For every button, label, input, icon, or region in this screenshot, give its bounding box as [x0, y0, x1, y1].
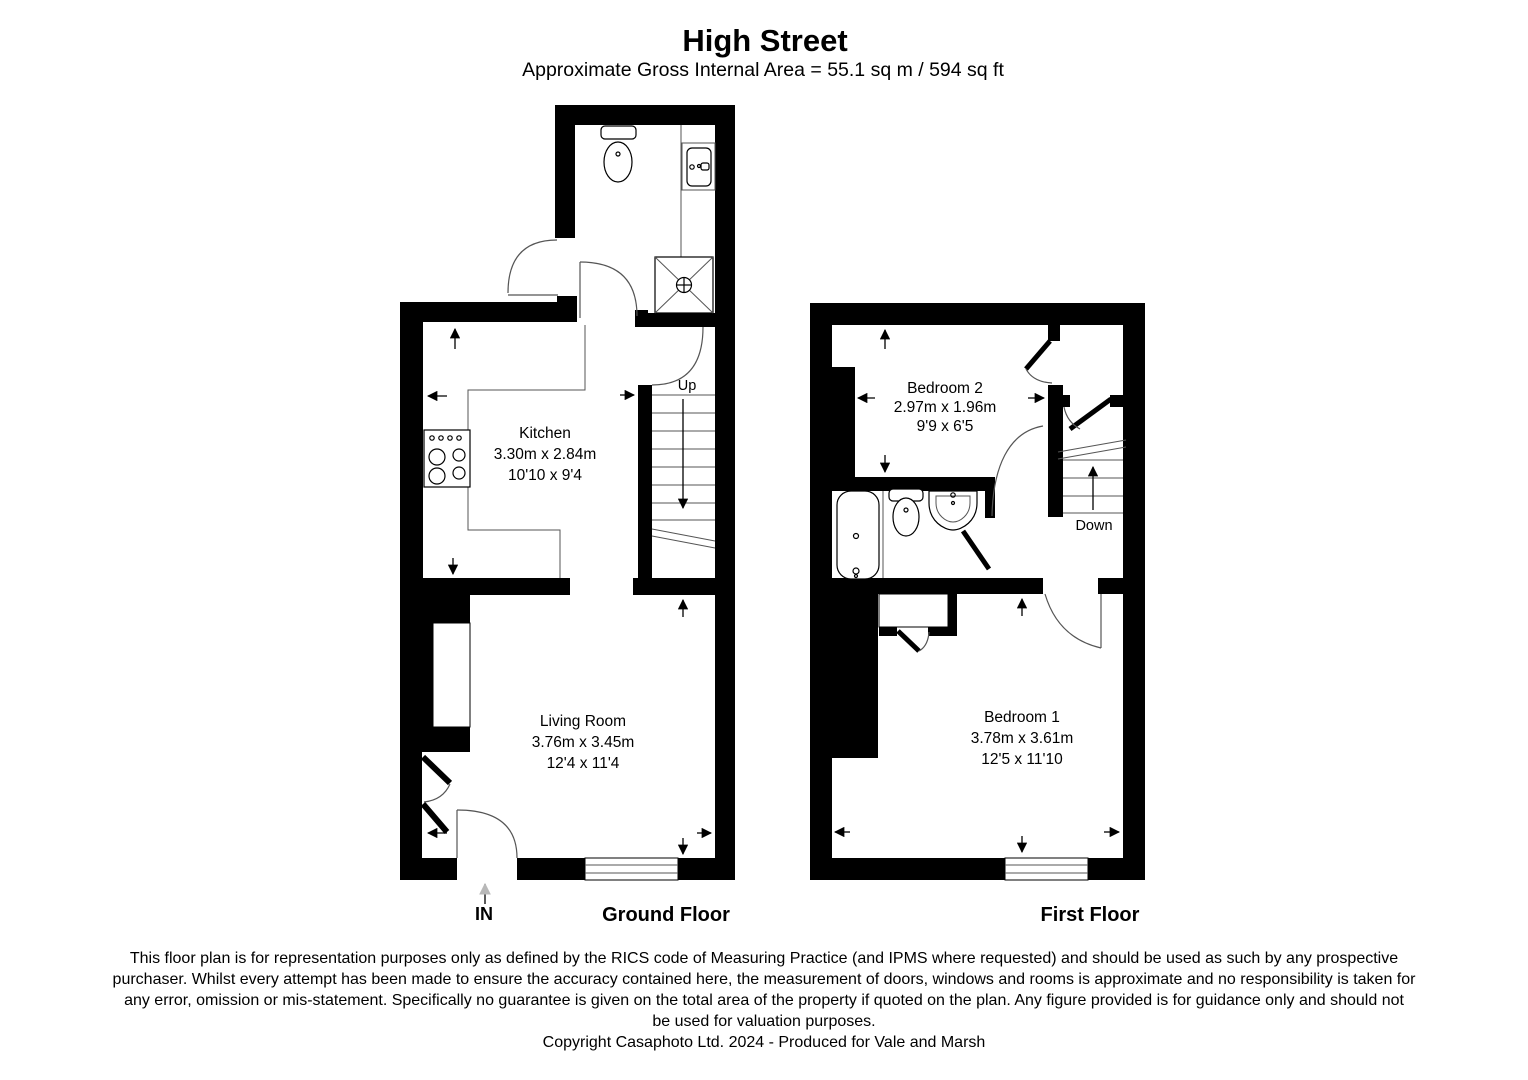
bath-icon — [837, 491, 883, 579]
bay-wall — [423, 757, 450, 783]
disclaimer-line-1: This floor plan is for representation pu… — [130, 950, 1398, 967]
sink-icon — [681, 125, 715, 257]
living-room-label: Living Room 3.76m x 3.45m 12'4 x 11'4 — [532, 713, 635, 772]
entrance-label: IN — [475, 904, 493, 924]
header: High Street Approximate Gross Internal A… — [522, 23, 1004, 81]
page-subtitle: Approximate Gross Internal Area = 55.1 s… — [522, 59, 1004, 81]
bedroom2-label: Bedroom 2 2.97m x 1.96m 9'9 x 6'5 — [894, 380, 997, 435]
bedroom1-name: Bedroom 1 — [984, 709, 1060, 726]
floorplan-drawing: High Street Approximate Gross Internal A… — [0, 0, 1528, 1080]
living-room-size-imperial: 12'4 x 11'4 — [547, 755, 620, 772]
toilet-icon — [601, 126, 636, 182]
stairs-up-icon — [652, 395, 715, 548]
bedroom2-size-metric: 2.97m x 1.96m — [894, 399, 997, 416]
bedroom1-size-metric: 3.78m x 3.61m — [971, 730, 1074, 747]
toilet-icon — [889, 489, 923, 536]
first-floor-plan: Bedroom 2 2.97m x 1.96m 9'9 x 6'5 Down B… — [810, 303, 1145, 926]
kitchen-name: Kitchen — [519, 425, 571, 442]
bedroom2-name: Bedroom 2 — [907, 380, 983, 397]
kitchen-size-metric: 3.30m x 2.84m — [494, 446, 597, 463]
first-floor-label: First Floor — [1041, 904, 1140, 926]
ground-floor-plan: Up Kitchen 3.30m x 2.84m 10'10 x 9'4 Liv… — [400, 105, 735, 926]
cooker-icon — [424, 430, 470, 487]
bedroom1-window — [1005, 858, 1088, 880]
disclaimer-line-2: purchaser. Whilst every attempt has been… — [113, 971, 1417, 988]
bedroom1-closet — [879, 594, 948, 627]
bay-wall — [423, 804, 447, 832]
living-room-size-metric: 3.76m x 3.45m — [532, 734, 635, 751]
bedroom1-size-imperial: 12'5 x 11'10 — [981, 751, 1063, 768]
kitchen-size-imperial: 10'10 x 9'4 — [508, 467, 582, 484]
bedroom2-size-imperial: 9'9 x 6'5 — [917, 418, 974, 435]
bedroom1-label: Bedroom 1 3.78m x 3.61m 12'5 x 11'10 — [971, 709, 1074, 768]
disclaimer-line-4: be used for valuation purposes. — [652, 1013, 875, 1030]
ground-floor-label: Ground Floor — [602, 904, 730, 926]
living-room-window — [585, 858, 678, 880]
stairs-down-label: Down — [1075, 518, 1112, 534]
stairs-up-label: Up — [678, 378, 697, 394]
disclaimer-line-3: any error, omission or mis-statement. Sp… — [124, 992, 1404, 1009]
stairs-down-icon — [1058, 440, 1126, 513]
page-title: High Street — [682, 23, 847, 58]
shower-icon — [655, 257, 713, 313]
footer: This floor plan is for representation pu… — [113, 950, 1417, 1051]
copyright-line: Copyright Casaphoto Ltd. 2024 - Produced… — [543, 1034, 986, 1051]
living-room-name: Living Room — [540, 713, 626, 730]
kitchen-label: Kitchen 3.30m x 2.84m 10'10 x 9'4 — [494, 425, 597, 484]
floorplan-page: High Street Approximate Gross Internal A… — [0, 0, 1528, 1080]
sink-icon — [929, 491, 977, 530]
living-room-alcove — [433, 623, 470, 727]
